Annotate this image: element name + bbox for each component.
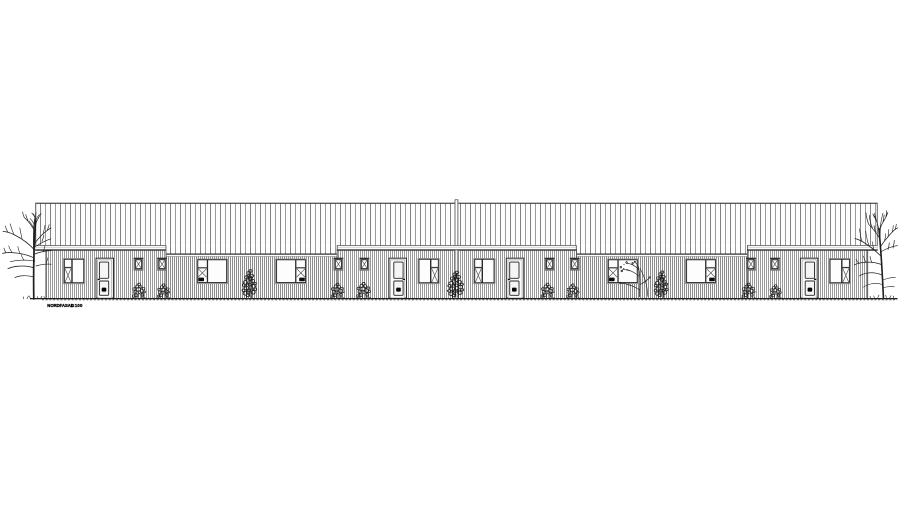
svg-text:1:100: 1:100 — [71, 303, 83, 308]
